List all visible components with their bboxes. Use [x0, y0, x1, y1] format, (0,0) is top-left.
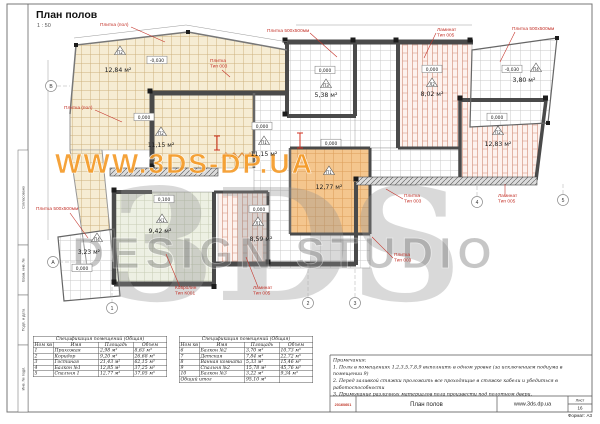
spec-table-right: Спецификация помещений (Общая) Ном кв Им…: [179, 336, 313, 383]
material-label-text: Плитка: [210, 58, 226, 64]
cell: 5: [33, 371, 53, 377]
titleblock-format: Формат: А3: [545, 413, 592, 418]
axis-bubble: А: [48, 257, 59, 268]
axis-bubble: В: [46, 81, 57, 92]
titleblock-sheet-label: Лист: [568, 397, 592, 404]
material-label-text: Тип К001: [175, 291, 195, 297]
stamp-col-label: Взам. инв. №: [22, 258, 26, 282]
room-area: 11,15 м²: [148, 142, 175, 149]
notes-heading: Примечания:: [333, 357, 593, 364]
material-label-text: Тип 003: [404, 199, 422, 205]
material-label-text: Плитка: [404, 193, 420, 199]
material-label-text: Плитка: [394, 252, 410, 258]
floor-corridor-top: [355, 44, 398, 148]
material-label-text: Ламинат: [498, 193, 518, 199]
stamp-col-label: Согласовано: [22, 186, 26, 209]
note-item: 2. Перед заливкой стяжки проложить все п…: [333, 377, 593, 391]
material-label-text: Тип 005: [437, 33, 455, 39]
axis-number: 4: [476, 200, 479, 206]
elevation: 0,000: [426, 67, 439, 73]
material-label-text: Тип 003: [394, 258, 412, 264]
material-label-text: Плитка (пол): [64, 105, 93, 111]
elevation: 0,000: [138, 115, 151, 121]
elevation: -0,030: [150, 58, 164, 64]
material-label-text: Плитка (пол): [100, 22, 129, 28]
room-area: 8,59 м²: [250, 236, 273, 243]
titleblock-stamp: 20160601: [332, 398, 354, 412]
page-scale: 1 : 50: [37, 23, 51, 29]
spec-table-left: Спецификация помещений (Общая) Ном кв Им…: [33, 336, 167, 377]
elevation: 0,100: [158, 197, 171, 203]
axis-bubble: 1: [107, 303, 118, 314]
table-total-row: Общий итог95,10 м²: [179, 377, 312, 383]
elevation: 0,000: [325, 141, 338, 147]
room-area: 11,15 м²: [251, 151, 278, 158]
material-label-text: Плитка 500х500мм: [36, 206, 78, 212]
stamp-col-label: Подп. и дата: [22, 308, 26, 331]
room-area: 8,02 м²: [421, 91, 444, 98]
elevation: 0,000: [76, 266, 89, 272]
floor-type-marker: П4: [94, 237, 100, 242]
room-area: 3,23 м²: [78, 249, 101, 256]
drawing-sheet: Согласовано Взам. инв. № Подп. и дата Ин…: [0, 0, 600, 424]
material-label-text: Ламинат: [437, 27, 457, 33]
room-area: 12,77 м²: [316, 184, 343, 191]
floor-hallway: [287, 44, 355, 116]
notes-block: Примечания: 1. Полы в помещениях 1,2,3,5…: [333, 357, 593, 398]
total-area: 95,10 м²: [245, 377, 280, 383]
elevation: 0,000: [491, 115, 504, 121]
room-area: 12,84 м²: [105, 67, 132, 74]
axis-bubble: 4: [472, 197, 483, 208]
elevation: -0,030: [505, 67, 519, 73]
axis-bubble: 5: [558, 195, 569, 206]
floor-type-marker: П2: [495, 130, 501, 135]
floor-type-marker: П3: [323, 83, 329, 88]
note-item: 1. Полы в помещениях 1,2,3,5,7,8,9 выпол…: [333, 364, 593, 378]
stamp-col-label: Инв. № подл.: [22, 367, 26, 391]
axis-number: 2: [307, 301, 310, 307]
room-area: 9,42 м²: [149, 228, 172, 235]
material-label-text: Плитка 500х500мм: [512, 26, 554, 32]
titleblock-sheet-number: 16: [568, 404, 592, 412]
watermark-studio: DESIGN STUDIO: [72, 229, 497, 278]
elevation: 0,000: [319, 68, 332, 74]
cell: Спальня 1: [53, 371, 99, 377]
elevation: 0,000: [253, 207, 266, 213]
material-label-text: Плитка 500х500мм: [267, 28, 309, 34]
cell: 12,77 м²: [99, 371, 134, 377]
floor-type-marker: К1: [159, 218, 165, 223]
material-label-text: Тип 005: [253, 291, 271, 297]
titleblock-website: www.3ds.dp.ua: [497, 396, 568, 412]
material-label-text: Ковролин: [175, 285, 197, 291]
axis-number: 3: [354, 301, 357, 307]
floor-type-marker: П2: [117, 50, 123, 55]
page-title: План полов: [36, 9, 98, 21]
room-area: 5,38 м²: [315, 92, 338, 99]
room-area: 3,80 м²: [513, 77, 536, 84]
total-label: Общий итог: [179, 377, 244, 383]
material-label-text: Ламинат: [253, 285, 273, 291]
floor-type-marker: П1: [261, 140, 267, 145]
room-area: 12,83 м²: [485, 141, 512, 148]
table-row: 5Спальня 112,77 м²37,05 м³: [33, 371, 166, 377]
titleblock-doc-title: План полов: [356, 396, 497, 412]
cell: [279, 377, 313, 383]
axis-bubble: 3: [350, 298, 361, 309]
axis-number: 5: [562, 198, 565, 204]
floor-type-marker: П2: [158, 131, 164, 136]
floor-type-marker: П1: [326, 170, 332, 175]
floor-type-marker: П4: [533, 67, 539, 72]
material-label: Ламинат Тип 005: [498, 184, 518, 205]
axis-bubble: 2: [303, 298, 314, 309]
floor-type-marker: Л2: [429, 82, 435, 87]
material-label-text: Тип 003: [210, 64, 228, 70]
elevation: 0,000: [256, 124, 269, 130]
cell: 37,05 м³: [133, 371, 167, 377]
material-label-text: Тип 005: [498, 199, 516, 205]
floor-type-marker: Л1: [255, 221, 261, 226]
axis-number: 1: [111, 306, 114, 312]
watermark: 3DS DESIGN STUDIO WWW.3DS-DP.UA: [55, 148, 498, 337]
